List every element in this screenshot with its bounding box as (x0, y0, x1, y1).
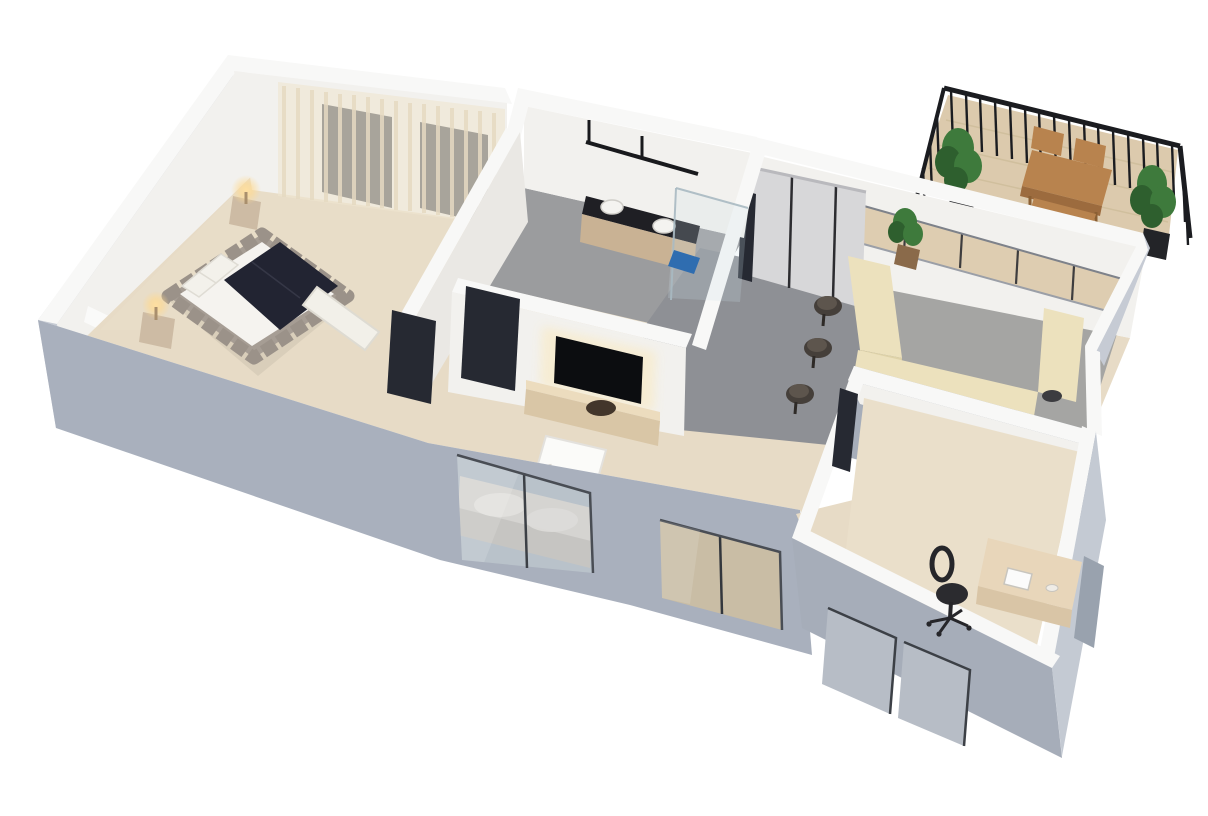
floor-plan-render (0, 0, 1208, 816)
round-speaker (586, 400, 616, 416)
desk-item (1046, 585, 1058, 592)
cooktop (1042, 390, 1062, 402)
vessel-sink-1 (601, 200, 623, 214)
floor-plan-stage (0, 0, 1208, 816)
counter-right-arm (1038, 308, 1084, 402)
vessel-sink-2 (653, 219, 675, 233)
east-wall-lower-band (1085, 346, 1102, 436)
shower (668, 188, 748, 302)
nightstand-1 (229, 175, 261, 230)
bathroom-door (461, 286, 520, 391)
bedroom-door (387, 310, 436, 404)
office-wing (792, 366, 1106, 758)
